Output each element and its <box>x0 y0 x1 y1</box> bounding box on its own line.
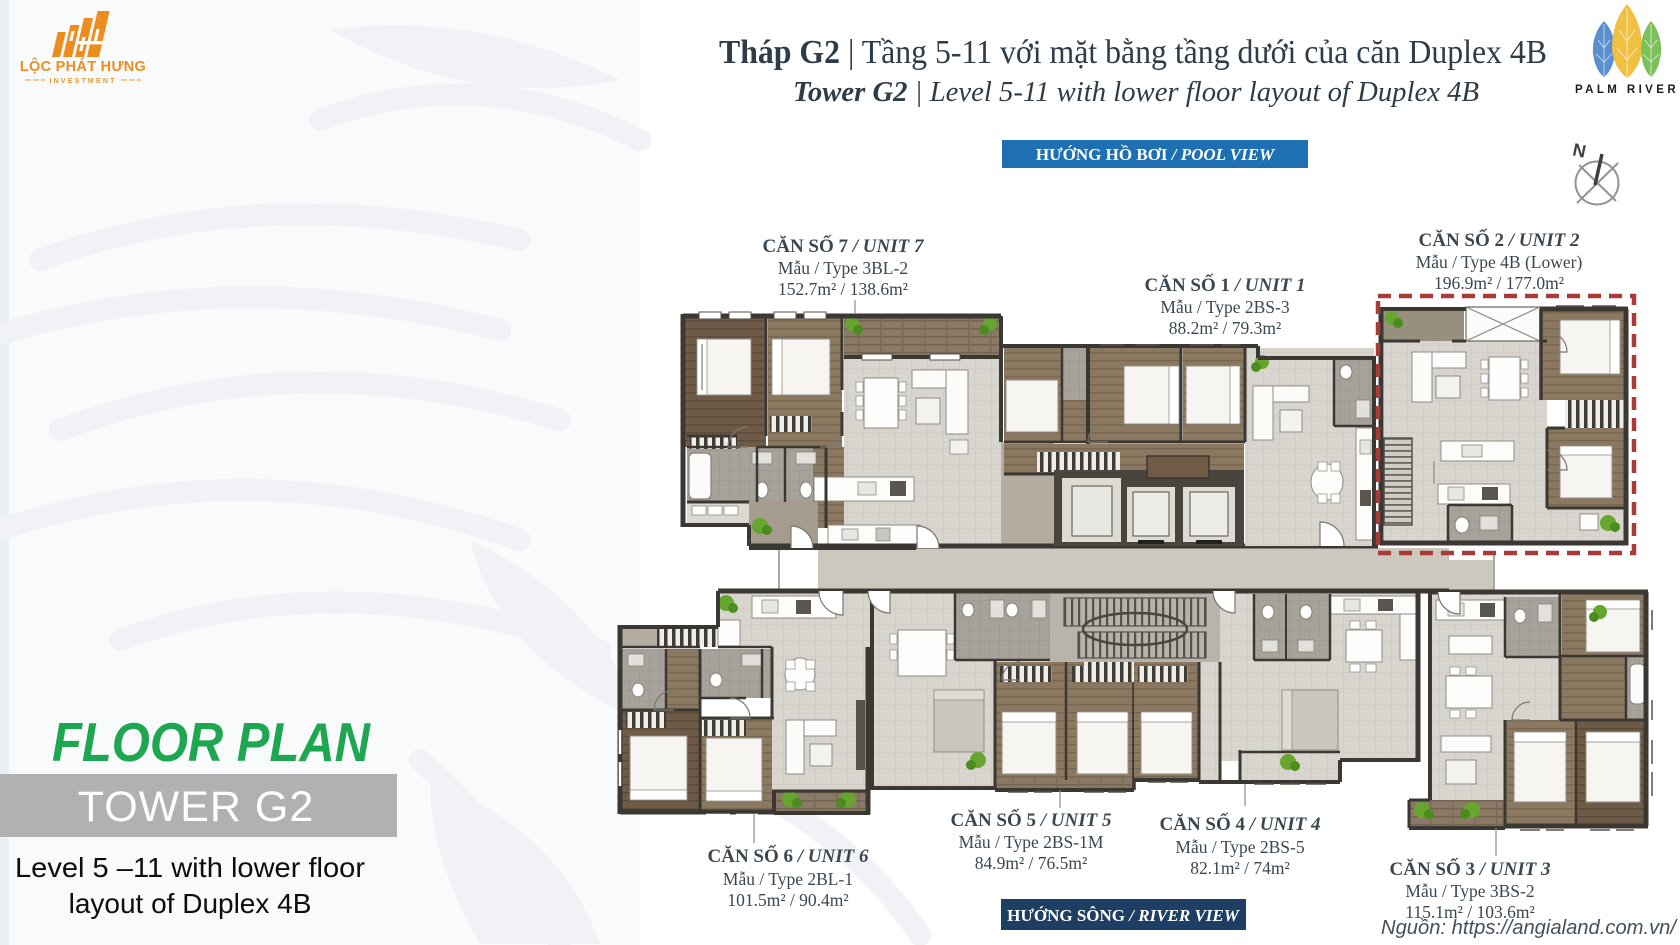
svg-text:115.1m² / 103.6m²: 115.1m² / 103.6m² <box>1405 902 1534 922</box>
svg-text:Tower G2 | Level 5-11 with low: Tower G2 | Level 5-11 with lower floor l… <box>793 77 1479 108</box>
svg-text:CĂN SỐ 2 / UNIT 2: CĂN SỐ 2 / UNIT 2 <box>1419 229 1580 251</box>
svg-text:152.7m² / 138.6m²: 152.7m² / 138.6m² <box>778 279 908 299</box>
svg-text:LỘC PHÁT HƯNG: LỘC PHÁT HƯNG <box>20 57 146 75</box>
svg-text:Level 5 –11 with lower floor: Level 5 –11 with lower floor <box>15 852 365 883</box>
svg-text:N: N <box>1571 140 1588 162</box>
svg-text:HƯỚNG HỒ BƠI / POOL VIEW: HƯỚNG HỒ BƠI / POOL VIEW <box>1036 144 1276 164</box>
svg-text:88.2m² / 79.3m²: 88.2m² / 79.3m² <box>1169 318 1282 338</box>
svg-text:HƯỚNG SÔNG / RIVER VIEW: HƯỚNG SÔNG / RIVER VIEW <box>1007 906 1241 925</box>
svg-text:layout of Duplex 4B: layout of Duplex 4B <box>69 888 312 919</box>
svg-text:FLOOR PLAN: FLOOR PLAN <box>52 711 371 773</box>
svg-text:82.1m² / 74m²: 82.1m² / 74m² <box>1190 858 1289 878</box>
svg-text:CĂN SỐ 6 / UNIT 6: CĂN SỐ 6 / UNIT 6 <box>708 845 869 867</box>
svg-text:Mẫu / Type 2BS-3: Mẫu / Type 2BS-3 <box>1160 297 1289 317</box>
svg-text:Tháp G2 | Tầng 5-11 với mặt bằ: Tháp G2 | Tầng 5-11 với mặt bằng tầng dư… <box>719 34 1547 71</box>
svg-text:Mẫu / Type 2BS-5: Mẫu / Type 2BS-5 <box>1175 837 1304 857</box>
svg-text:Mẫu / Type 4B (Lower): Mẫu / Type 4B (Lower) <box>1416 252 1583 272</box>
svg-text:196.9m² / 177.0m²: 196.9m² / 177.0m² <box>1434 273 1564 293</box>
svg-text:CĂN SỐ 4 / UNIT 4: CĂN SỐ 4 / UNIT 4 <box>1160 813 1321 835</box>
svg-text:INVESTMENT: INVESTMENT <box>49 78 116 85</box>
svg-text:CĂN SỐ 3 / UNIT 3: CĂN SỐ 3 / UNIT 3 <box>1390 858 1551 880</box>
svg-text:CĂN SỐ 5 / UNIT 5: CĂN SỐ 5 / UNIT 5 <box>951 809 1112 831</box>
svg-text:Mẫu / Type 2BL-1: Mẫu / Type 2BL-1 <box>723 869 853 889</box>
svg-text:84.9m² / 76.5m²: 84.9m² / 76.5m² <box>975 853 1088 873</box>
svg-text:Mẫu / Type 2BS-1M: Mẫu / Type 2BS-1M <box>959 832 1104 852</box>
svg-text:CĂN SỐ 1 / UNIT 1: CĂN SỐ 1 / UNIT 1 <box>1145 274 1306 296</box>
svg-text:101.5m² / 90.4m²: 101.5m² / 90.4m² <box>727 890 848 910</box>
svg-text:TOWER G2: TOWER G2 <box>78 783 315 831</box>
svg-text:Mẫu / Type 3BL-2: Mẫu / Type 3BL-2 <box>778 258 908 278</box>
svg-text:PALM RIVER: PALM RIVER <box>1575 84 1679 96</box>
svg-text:Mẫu / Type 3BS-2: Mẫu / Type 3BS-2 <box>1405 881 1534 901</box>
svg-text:CĂN SỐ 7 / UNIT 7: CĂN SỐ 7 / UNIT 7 <box>763 235 925 257</box>
